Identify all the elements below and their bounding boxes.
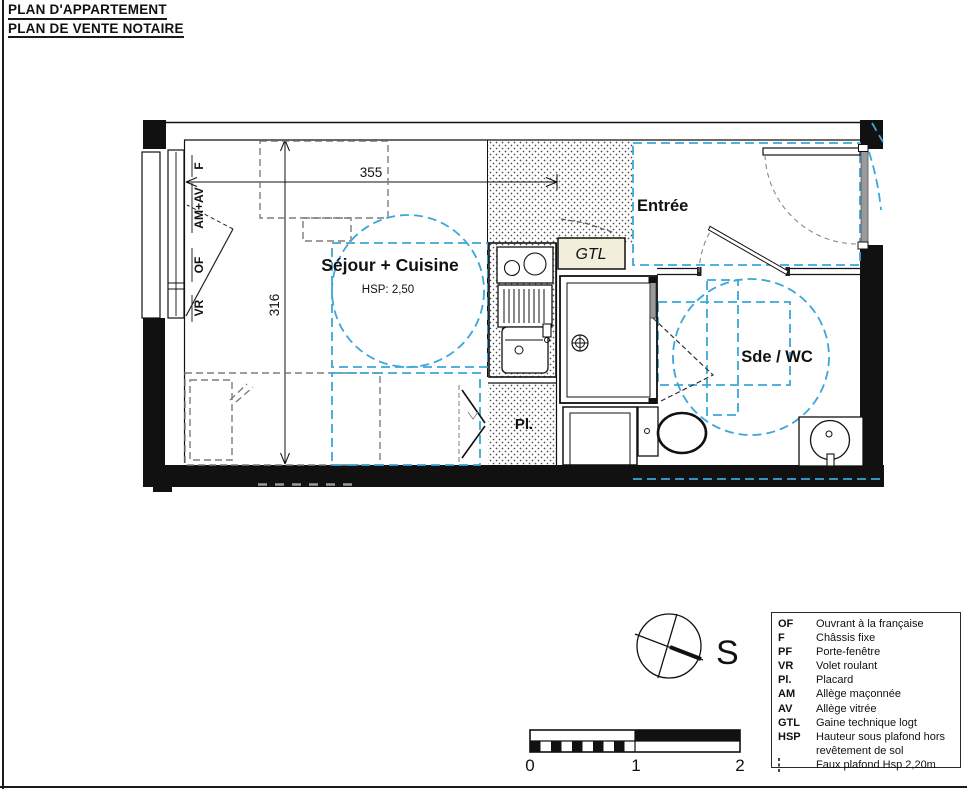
legend-abbr: OF	[778, 617, 814, 631]
legend-row: GTL Gaine technique logt	[778, 716, 957, 730]
legend-abbr: PF	[778, 645, 814, 659]
faux-plafond-hatch-icon	[778, 758, 814, 772]
kitchen-sink	[502, 324, 551, 373]
room-label-sde-wc: Sde / WC	[741, 348, 813, 366]
legend-label: Châssis fixe	[816, 631, 957, 645]
shower-drain	[572, 335, 588, 351]
legend-row: PF Porte-fenêtre	[778, 645, 957, 659]
drainer	[498, 285, 552, 327]
compass-north-arrow: S	[635, 614, 739, 678]
cooktop	[497, 247, 553, 283]
legend: OF Ouvrant à la française F Châssis fixe…	[771, 612, 961, 768]
legend-abbr: AV	[778, 702, 814, 716]
legend-label: Allège maçonnée	[816, 687, 957, 701]
gtl-label: GTL	[575, 246, 606, 263]
room-label-sejour-hsp: HSP: 2,50	[362, 284, 414, 296]
dimension-height: 316	[267, 140, 290, 464]
window-label-am-av: AM+AV	[192, 187, 206, 228]
legend-row: HSP Hauteur sous plafond hors revêtement…	[778, 730, 957, 758]
legend-abbr: AM	[778, 687, 814, 701]
washbasin	[799, 417, 863, 466]
washer-cabinet	[563, 407, 637, 465]
gtl-duct: GTL	[558, 238, 625, 269]
legend-abbr: F	[778, 631, 814, 645]
placard-door	[459, 385, 485, 462]
legend-row: AM Allège maçonnée	[778, 687, 957, 701]
room-label-entree: Entrée	[637, 197, 688, 215]
legend-abbr: HSP	[778, 730, 814, 758]
legend-abbr: Pl.	[778, 673, 814, 687]
scale-tick-2: 2	[735, 756, 744, 775]
kitchen-block	[489, 243, 556, 377]
furniture-dashed	[185, 141, 388, 465]
legend-row: OF Ouvrant à la française	[778, 617, 957, 631]
entrance-door	[699, 226, 788, 274]
legend-row: AV Allège vitrée	[778, 702, 957, 716]
page-frame-bottom	[0, 786, 967, 788]
room-label-placard: Pl.	[515, 416, 533, 433]
legend-label: Volet roulant	[816, 659, 957, 673]
scale-bar: 0 1 2	[525, 730, 744, 775]
toilet	[638, 407, 706, 456]
compass-south-label: S	[716, 634, 739, 672]
dimension-height-value: 316	[267, 294, 282, 317]
legend-label: Porte-fenêtre	[816, 645, 957, 659]
room-label-sejour: Séjour + Cuisine	[321, 255, 459, 275]
page-frame-left	[2, 0, 4, 789]
legend-row: VR Volet roulant	[778, 659, 957, 673]
legend-row: Pl. Placard	[778, 673, 957, 687]
legend-abbr: GTL	[778, 716, 814, 730]
legend-label: Gaine technique logt	[816, 716, 957, 730]
legend-label: Allège vitrée	[816, 702, 957, 716]
legend-row: F Châssis fixe	[778, 631, 957, 645]
legend-row: Faux plafond Hsp 2,20m	[778, 758, 957, 772]
scale-tick-0: 0	[525, 756, 534, 775]
window-label-of: OF	[192, 257, 206, 274]
notary-floor-plan-page: PLAN D'APPARTEMENT PLAN DE VENTE NOTAIRE	[0, 0, 967, 789]
french-door-right	[763, 145, 868, 250]
legend-label: Faux plafond Hsp 2,20m	[816, 758, 957, 772]
legend-label: Placard	[816, 673, 957, 687]
dimension-width-value: 355	[360, 165, 383, 180]
legend-abbr: VR	[778, 659, 814, 673]
window-label-vr: VR	[192, 299, 206, 316]
window-label-f: F	[192, 162, 206, 169]
legend-label: Hauteur sous plafond hors revêtement de …	[816, 730, 957, 758]
shower-door-swing	[653, 318, 713, 401]
legend-label: Ouvrant à la française	[816, 617, 957, 631]
scale-tick-1: 1	[631, 756, 640, 775]
window-left-wall: F AM+AV OF VR	[142, 150, 233, 322]
